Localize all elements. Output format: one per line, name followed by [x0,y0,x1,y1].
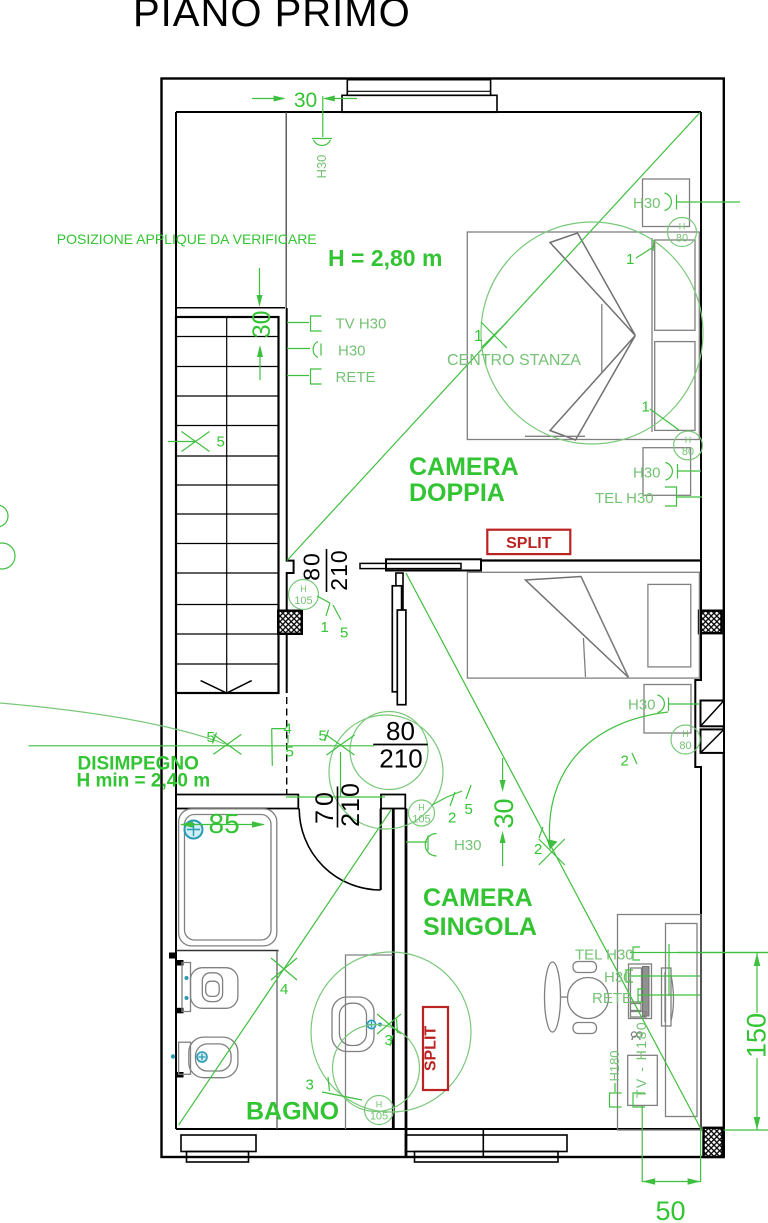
svg-text:30: 30 [248,310,276,338]
svg-text:BAGNO: BAGNO [246,1098,339,1126]
svg-text:30: 30 [294,89,317,112]
svg-text:H30: H30 [604,969,632,986]
svg-text:CAMERA: CAMERA [409,453,519,481]
svg-text:1: 1 [474,328,483,345]
svg-text:80: 80 [679,740,691,752]
svg-text:CAMERA: CAMERA [423,884,533,912]
svg-text:H: H [682,729,689,739]
svg-text:SPLIT: SPLIT [506,535,552,552]
svg-text:105: 105 [412,814,430,826]
svg-text:5: 5 [286,744,294,761]
svg-text:SINGOLA: SINGOLA [423,913,537,941]
svg-text:H180: H180 [607,1050,622,1081]
svg-text:5: 5 [340,625,348,642]
svg-text:PIANO PRIMO: PIANO PRIMO [133,0,411,35]
svg-text:H = 2,80 m: H = 2,80 m [328,245,442,271]
svg-text:105: 105 [294,595,312,607]
svg-text:80: 80 [299,551,325,581]
svg-text:4: 4 [280,981,288,998]
svg-text:CENTRO STANZA: CENTRO STANZA [447,352,581,369]
svg-text:5: 5 [319,728,327,745]
svg-text:1: 1 [321,619,329,636]
svg-text:30: 30 [489,798,519,828]
svg-text:2: 2 [534,841,542,858]
svg-text:TV - H180: TV - H180 [633,1021,649,1098]
svg-text:2: 2 [621,753,629,770]
svg-text:1: 1 [626,251,634,268]
svg-text:TEL H30: TEL H30 [575,947,634,964]
svg-text:H min = 2,40 m: H min = 2,40 m [77,771,211,792]
svg-text:80: 80 [386,716,415,746]
svg-text:DOPPIA: DOPPIA [409,479,505,507]
svg-text:TEL H30: TEL H30 [595,490,654,507]
svg-text:H: H [685,435,692,445]
svg-text:H: H [418,803,425,813]
svg-text:POSIZIONE APPLIQUE DA VERIFICA: POSIZIONE APPLIQUE DA VERIFICARE [57,231,317,247]
svg-text:150: 150 [742,1013,768,1058]
svg-text:5: 5 [465,801,473,818]
svg-text:SPLIT: SPLIT [423,1026,440,1072]
svg-text:H30: H30 [633,465,661,482]
svg-text:H: H [300,584,307,594]
svg-text:85: 85 [209,808,240,839]
svg-text:210: 210 [326,549,352,590]
svg-text:105: 105 [370,1111,388,1123]
svg-text:RETE: RETE [336,369,376,386]
svg-text:3: 3 [306,1077,314,1094]
svg-text:H30: H30 [633,195,661,212]
svg-text:H30: H30 [314,155,329,179]
svg-text:3: 3 [385,1032,393,1049]
svg-text:80: 80 [676,233,688,245]
svg-text:210: 210 [337,782,365,827]
svg-text:1: 1 [642,399,650,416]
svg-text:210: 210 [379,744,422,774]
svg-text:H: H [679,222,686,232]
svg-text:H30: H30 [338,343,366,360]
svg-text:H30: H30 [454,837,482,854]
svg-text:H: H [376,1100,383,1110]
svg-text:5: 5 [217,434,225,451]
svg-text:70: 70 [311,788,339,824]
svg-text:RETE: RETE [592,990,632,1007]
svg-text:5: 5 [207,729,215,746]
svg-text:TV H30: TV H30 [336,316,387,333]
svg-text:50: 50 [655,1196,685,1223]
svg-text:80: 80 [682,446,694,458]
svg-text:2: 2 [448,810,456,827]
svg-text:H30: H30 [628,697,656,714]
svg-text:4: 4 [284,721,292,738]
